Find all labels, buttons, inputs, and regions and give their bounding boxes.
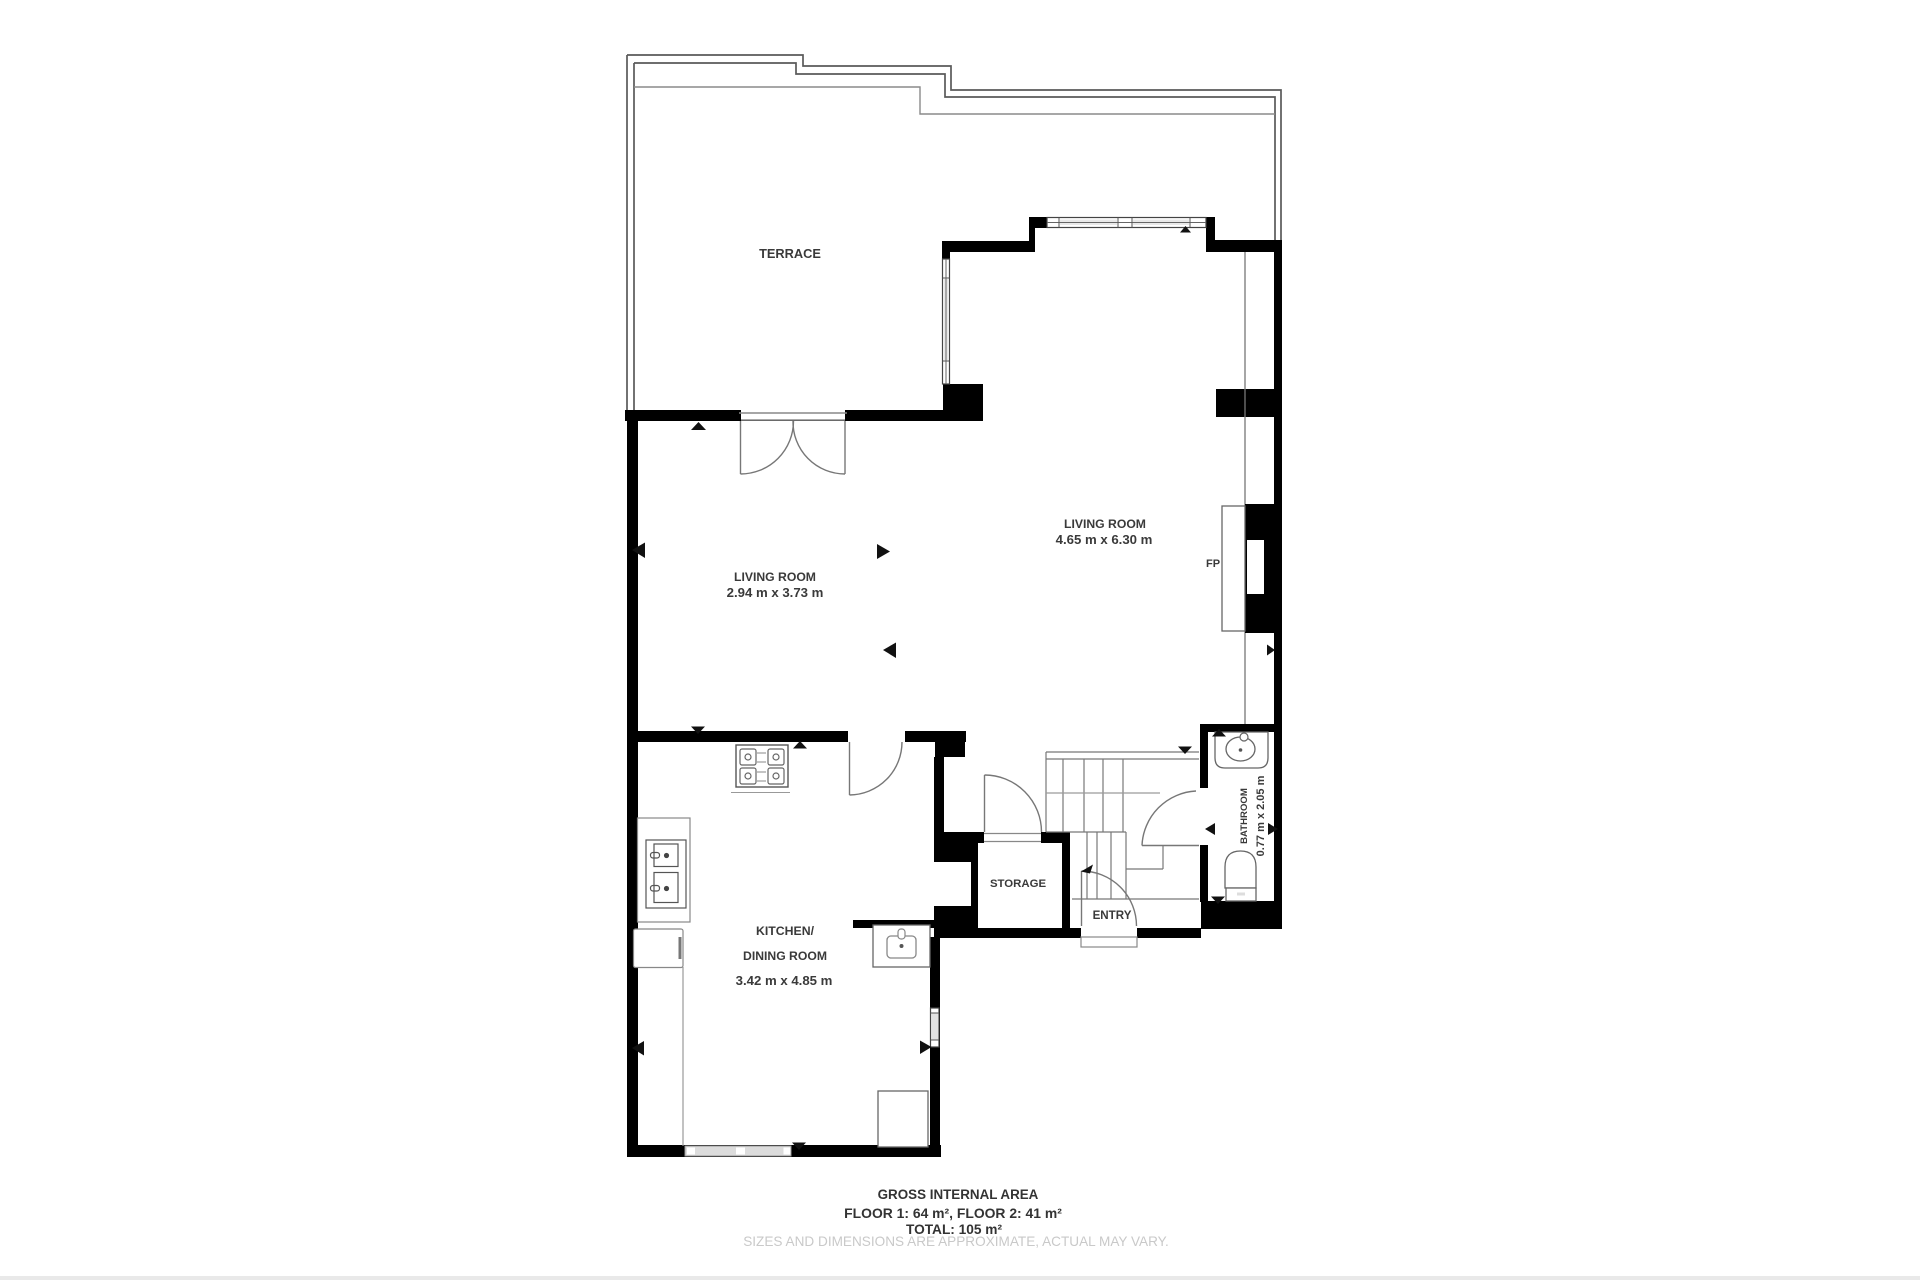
svg-text:GROSS INTERNAL AREA: GROSS INTERNAL AREA bbox=[878, 1187, 1039, 1202]
svg-text:STORAGE: STORAGE bbox=[990, 878, 1047, 890]
svg-text:4.65 m x 6.30 m: 4.65 m x 6.30 m bbox=[1056, 532, 1153, 547]
svg-text:DINING ROOM: DINING ROOM bbox=[743, 949, 827, 963]
svg-text:FP: FP bbox=[1206, 558, 1220, 570]
svg-text:LIVING ROOM: LIVING ROOM bbox=[1064, 517, 1146, 531]
svg-text:BATHROOM: BATHROOM bbox=[1239, 788, 1250, 844]
svg-text:TERRACE: TERRACE bbox=[759, 246, 821, 261]
svg-text:FLOOR 1: 64 m², FLOOR 2: 41 m²: FLOOR 1: 64 m², FLOOR 2: 41 m² bbox=[844, 1205, 1062, 1221]
svg-text:ENTRY: ENTRY bbox=[1093, 909, 1132, 922]
svg-text:2.94 m x 3.73 m: 2.94 m x 3.73 m bbox=[727, 585, 824, 600]
svg-text:SIZES AND DIMENSIONS ARE APPRO: SIZES AND DIMENSIONS ARE APPROXIMATE, AC… bbox=[743, 1234, 1169, 1249]
svg-text:3.42 m x 4.85 m: 3.42 m x 4.85 m bbox=[736, 973, 833, 988]
svg-text:LIVING ROOM: LIVING ROOM bbox=[734, 570, 816, 584]
svg-text:0.77 m x 2.05 m: 0.77 m x 2.05 m bbox=[1255, 775, 1267, 856]
svg-text:KITCHEN/: KITCHEN/ bbox=[756, 924, 815, 938]
